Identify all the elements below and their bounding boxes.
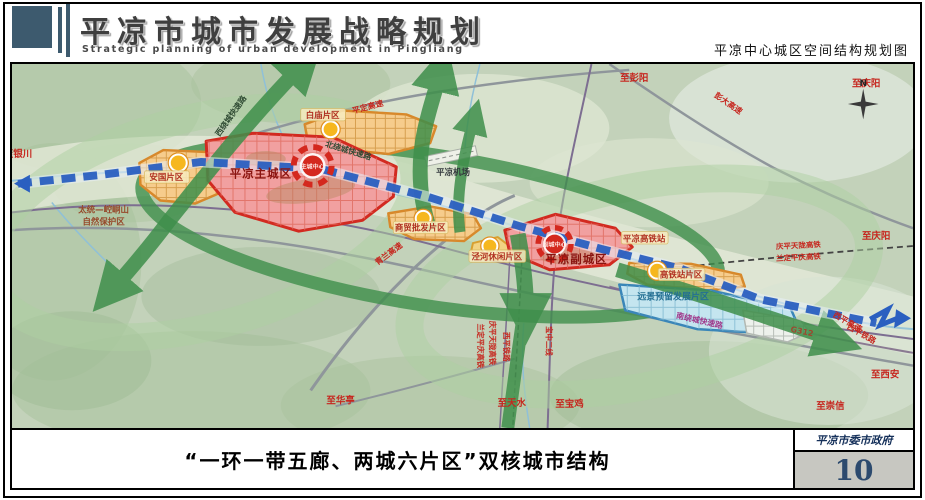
label-dir-yinchuan: 至银川	[12, 148, 32, 160]
label-zone-gaotiezhan: 高铁站片区	[660, 270, 703, 280]
header-logo-square	[12, 6, 52, 48]
footer-caption: “一环一带五廊、两城六片区”双核城市结构	[12, 430, 783, 488]
label-rail-baozhong-v: 宝中二线	[545, 326, 555, 356]
label-rail-qptl-v: 庆平天陇高铁	[488, 321, 498, 366]
label-hsr-station: 平凉高铁站	[623, 234, 666, 244]
map-canvas: 主城中心 副城中心 安国片区 白庙片区 商贸批发片区 泾河休闲片区 高铁站片区 …	[12, 64, 913, 428]
label-dir-tianshui: 至天水	[498, 397, 527, 409]
label-nature-reserve-2: 自然保护区	[82, 217, 125, 227]
node-anguo	[168, 153, 188, 173]
label-zone-shangmao: 商贸批发片区	[395, 223, 446, 233]
label-nature-reserve-1: 太统—崆峒山	[77, 204, 129, 214]
label-dir-xian: 至西安	[871, 369, 899, 381]
page-subtitle: Strategic planning of urban development …	[82, 44, 464, 55]
label-zone-jinghe: 泾河休闲片区	[471, 251, 522, 261]
label-district-sub: 平凉副城区	[545, 252, 607, 266]
label-dir-chongxin: 至崇信	[816, 400, 845, 412]
footer: “一环一带五廊、两城六片区”双核城市结构 平凉市委市政府 10	[10, 430, 915, 490]
label-dir-huating: 至华亭	[326, 394, 355, 406]
label-dir-baoji: 至宝鸡	[555, 398, 583, 410]
node-baimiao	[321, 120, 340, 139]
agency-label: 平凉市委市政府	[795, 430, 913, 450]
header-logo-bar	[58, 7, 62, 53]
compass-north-label: N	[859, 79, 866, 89]
agency-box: 平凉市委市政府 10	[793, 430, 913, 488]
planning-sheet: 平凉市城市发展战略规划 Strategic planning of urban …	[0, 0, 925, 500]
label-dir-pengyang: 至彭阳	[620, 72, 648, 84]
header-logo-bar	[66, 3, 70, 57]
label-dir-qingyang-right: 至庆阳	[862, 230, 890, 242]
label-district-main: 平凉主城区	[230, 167, 292, 181]
core-main-label: 主城中心	[301, 162, 325, 170]
map-area: 主城中心 副城中心 安国片区 白庙片区 商贸批发片区 泾河休闲片区 高铁站片区 …	[10, 62, 915, 430]
label-rail-ldpq-v: 兰定平庆高铁	[476, 324, 486, 369]
label-airport: 平凉机场	[436, 167, 470, 177]
label-zone-baimiao: 白庙片区	[306, 110, 340, 120]
core-sub-label: 副城中心	[543, 241, 567, 249]
label-zone-reserve: 远景预留发展片区	[637, 290, 709, 302]
corridor-south	[518, 234, 526, 305]
label-rail-xiping-v: 西平铁路	[502, 332, 512, 362]
page-number: 10	[795, 450, 913, 488]
map-sheet-title: 平凉中心城区空间结构规划图	[714, 40, 909, 59]
label-zone-anguo: 安国片区	[149, 172, 183, 182]
